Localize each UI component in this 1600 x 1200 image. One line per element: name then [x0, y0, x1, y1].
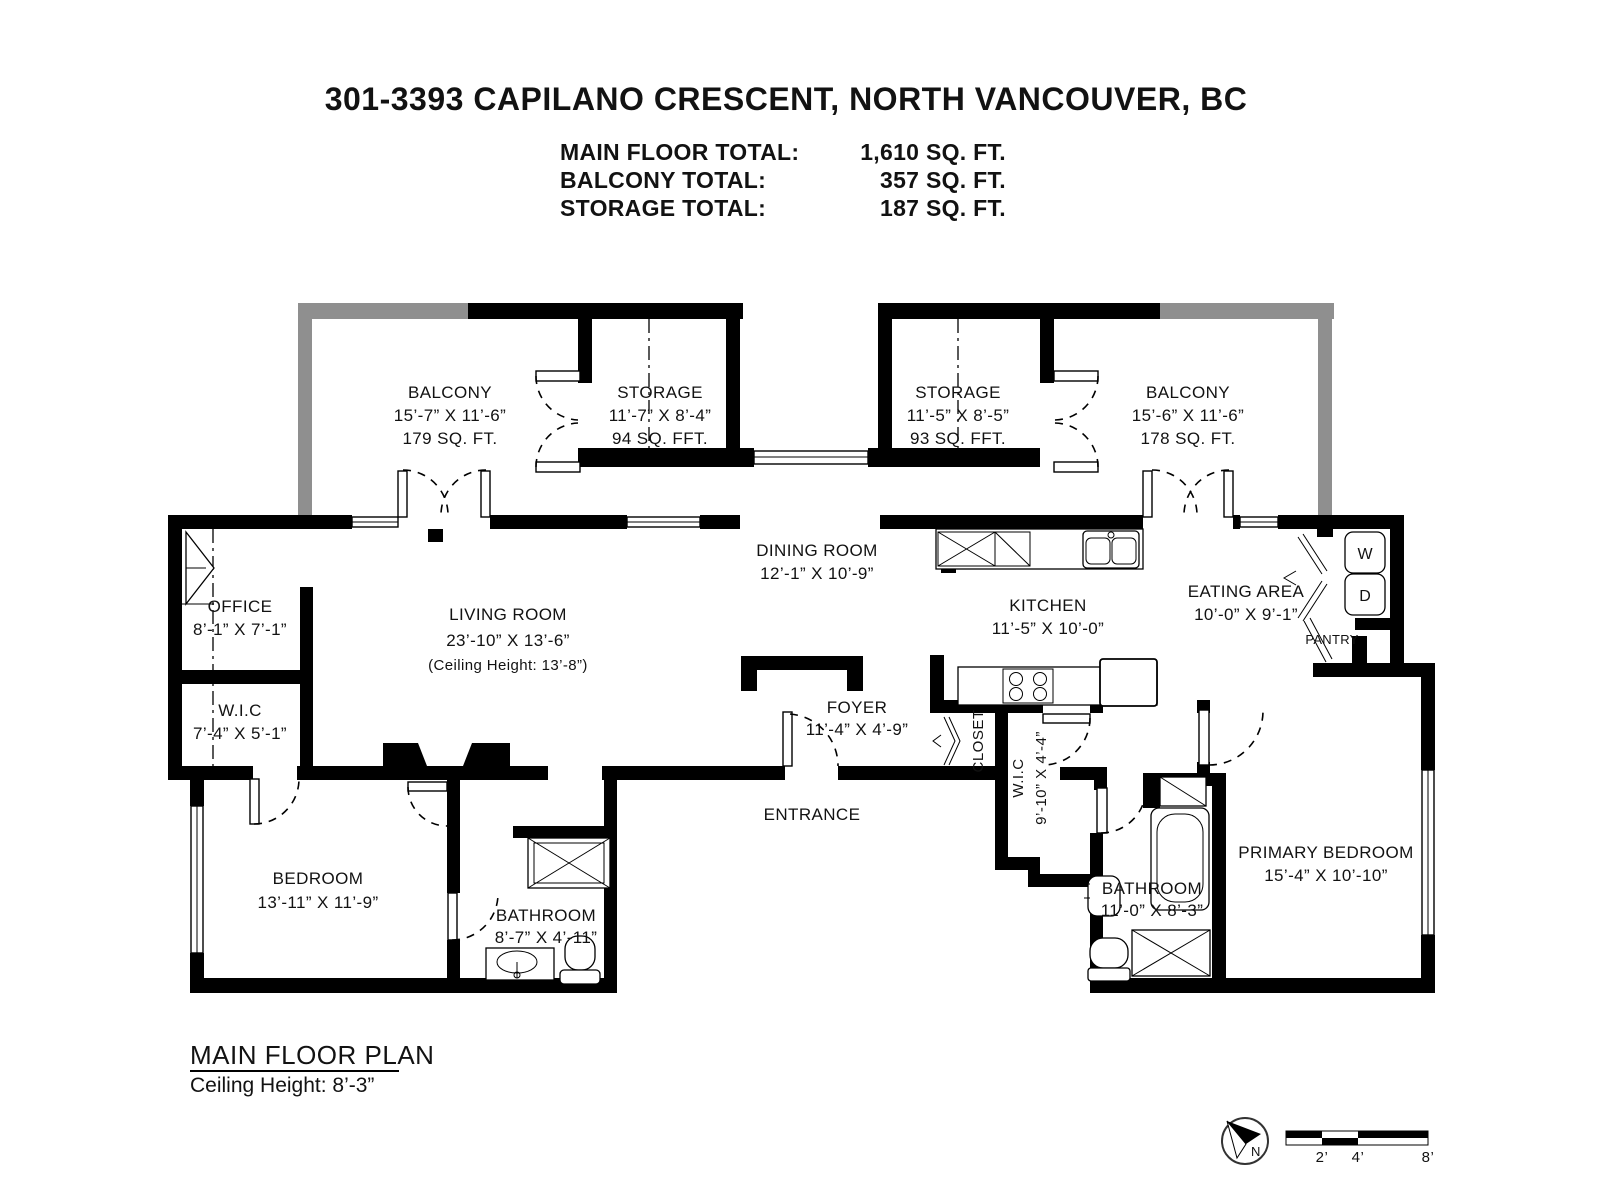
washer-dryer: W D: [1345, 532, 1385, 615]
washer-label: W: [1357, 546, 1373, 563]
niche-opening: [757, 670, 847, 691]
entrance-label: ENTRANCE: [764, 805, 861, 824]
total-label: BALCONY TOTAL:: [560, 167, 766, 193]
fridge: [1100, 659, 1157, 706]
foyer-dims: 11’-4” X 4’-9”: [806, 720, 909, 739]
scale-tick: 8’: [1422, 1149, 1435, 1166]
page-title: 301-3393 CAPILANO CRESCENT, NORTH VANCOU…: [325, 81, 1248, 117]
ceiling-note: Ceiling Height: 8’-3”: [190, 1074, 374, 1097]
bedroom-name: BEDROOM: [273, 869, 364, 888]
office-dims: 8’-1” X 7’-1”: [193, 620, 287, 639]
kitchen-name: KITCHEN: [1009, 596, 1086, 615]
storage-left-area: 94 SQ. FFT.: [612, 429, 708, 448]
storage-left-name: STORAGE: [617, 383, 703, 402]
fireplace-opening: [418, 743, 472, 766]
balcony-right-name: BALCONY: [1146, 383, 1230, 402]
total-label: STORAGE TOTAL:: [560, 195, 766, 221]
total-value: 357 SQ. FT.: [880, 167, 1006, 193]
eating-area-dims: 10’-0” X 9’-1”: [1194, 605, 1298, 624]
toilet-right: [1088, 938, 1130, 981]
scale-tick: 4’: [1352, 1149, 1365, 1166]
storage-right-dims: 11’-5” X 8’-5”: [907, 406, 1010, 425]
living-room-name: LIVING ROOM: [449, 605, 567, 624]
primary-bedroom-dims: 15’-4” X 10’-10”: [1264, 866, 1388, 885]
living-room-dims: 23’-10” X 13’-6”: [446, 631, 570, 650]
bathroom-left-dims: 8’-7” X 4’-11”: [495, 928, 598, 947]
primary-bedroom-name: PRIMARY BEDROOM: [1238, 843, 1413, 862]
storage-left-dims: 11’-7” X 8’-4”: [609, 406, 712, 425]
balcony-right-dims: 15’-6” X 11’-6”: [1132, 406, 1244, 425]
balcony-left-name: BALCONY: [408, 383, 492, 402]
wic-left-name: W.I.C: [218, 701, 262, 720]
balcony-left-area: 179 SQ. FT.: [402, 429, 497, 448]
living-room-note: (Ceiling Height: 13’-8”): [428, 657, 588, 674]
balcony-left-dims: 15’-7” X 11’-6”: [394, 406, 506, 425]
floor-plan-page: 301-3393 CAPILANO CRESCENT, NORTH VANCOU…: [0, 0, 1600, 1200]
linen-shelf-right: [1160, 777, 1206, 806]
compass-icon: N: [1222, 1118, 1268, 1164]
shower-left: [528, 838, 610, 888]
compass-north-label: N: [1251, 1144, 1260, 1159]
bedroom-dims: 13’-11” X 11’-9”: [257, 893, 378, 912]
wic-right-dims: 9’-10” X 4’-4”: [1033, 731, 1050, 825]
kitchen-dims: 11’-5” X 10’-0”: [992, 619, 1104, 638]
wic-left-dims: 7’-4” X 5’-1”: [193, 724, 287, 743]
dining-room-name: DINING ROOM: [756, 541, 878, 560]
bathroom-left-name: BATHROOM: [496, 906, 596, 925]
dryer-label: D: [1359, 588, 1371, 605]
storage-right-area: 93 SQ. FFT.: [910, 429, 1006, 448]
pantry-label: PANTRY: [1305, 632, 1358, 647]
office-name: OFFICE: [208, 597, 273, 616]
totals-block: MAIN FLOOR TOTAL: 1,610 SQ. FT. BALCONY …: [560, 139, 1006, 221]
total-value: 1,610 SQ. FT.: [860, 139, 1006, 165]
windows: [191, 451, 1434, 953]
foyer-name: FOYER: [827, 698, 888, 717]
wic-right-name: W.I.C: [1010, 758, 1027, 797]
scale-bar: 2’ 4’ 8’: [1286, 1131, 1434, 1166]
total-value: 187 SQ. FT.: [880, 195, 1006, 221]
balcony-right-area: 178 SQ. FT.: [1140, 429, 1235, 448]
total-label: MAIN FLOOR TOTAL:: [560, 139, 799, 165]
closet-bifold: [933, 717, 960, 765]
bathroom-right-dims: 11’-0” X 8’-3”: [1101, 901, 1204, 920]
storage-right-name: STORAGE: [915, 383, 1001, 402]
footer-block: MAIN FLOOR PLAN Ceiling Height: 8’-3”: [190, 1040, 434, 1097]
walls: [168, 303, 1435, 993]
kitchen-sink: [1083, 531, 1139, 568]
floor-plan: 301-3393 CAPILANO CRESCENT, NORTH VANCOU…: [0, 0, 1600, 1200]
shower-right: [1132, 930, 1210, 976]
scale-tick: 2’: [1316, 1149, 1329, 1166]
plan-name: MAIN FLOOR PLAN: [190, 1040, 434, 1070]
vanity-sink-left: [486, 948, 554, 980]
eating-area-name: EATING AREA: [1188, 582, 1305, 601]
dining-room-dims: 12’-1” X 10’-9”: [760, 564, 874, 583]
closet-label: CLOSET: [970, 709, 987, 772]
bathroom-right-name: BATHROOM: [1102, 879, 1202, 898]
